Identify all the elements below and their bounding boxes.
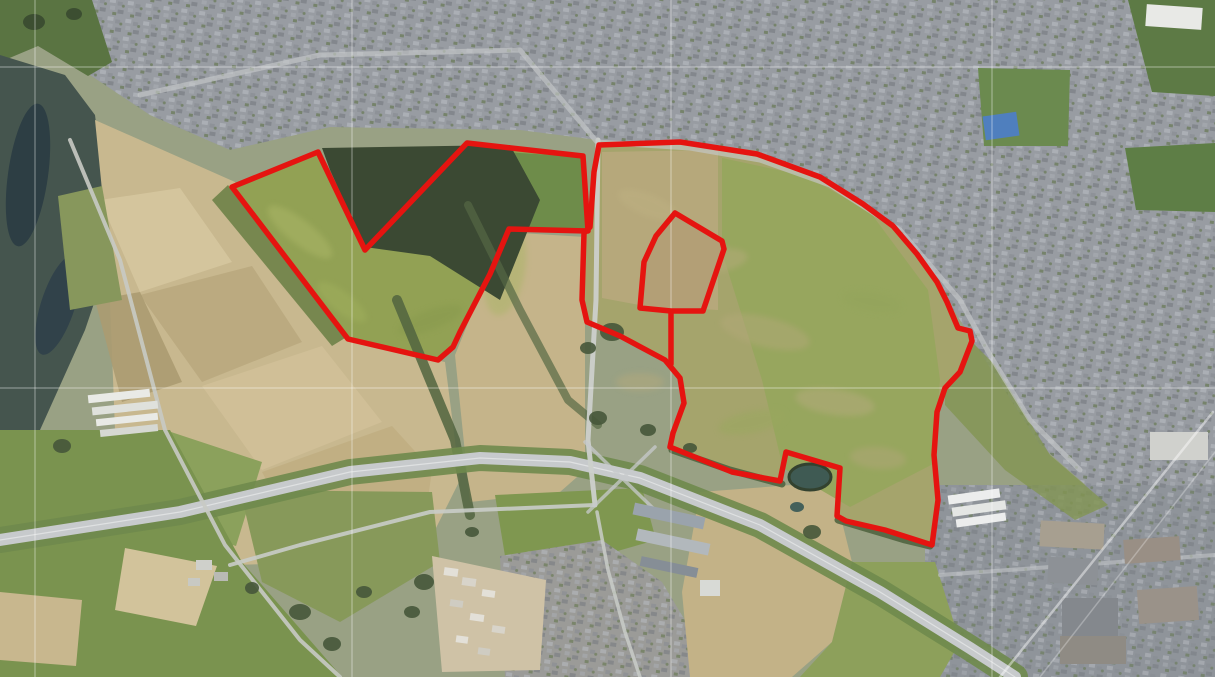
- village-house-1: [196, 560, 212, 570]
- campus-parking-lot: [1062, 598, 1118, 636]
- landcover-group: [0, 0, 1215, 677]
- tree-clump-4: [414, 574, 434, 590]
- tree-clump-13: [465, 527, 479, 537]
- pond-small: [790, 502, 804, 512]
- tree-clump-12: [404, 606, 420, 618]
- tree-clump-3: [640, 424, 656, 436]
- tree-clump-8: [53, 439, 71, 453]
- tree-clump-14: [803, 525, 821, 539]
- tree-clump-7: [356, 586, 372, 598]
- field-right-1: [1125, 143, 1215, 212]
- village-house-2: [214, 572, 228, 581]
- village-house-3: [188, 578, 200, 586]
- campus-block-1: [1039, 520, 1104, 549]
- white-building-top-right: [1145, 4, 1202, 30]
- tree-clump-9: [23, 14, 45, 30]
- aerial-map-view: [0, 0, 1215, 677]
- tree-clump-5: [289, 604, 311, 620]
- campus-block-3: [1047, 557, 1098, 586]
- pond: [789, 464, 831, 490]
- warehouse-4: [700, 580, 720, 596]
- tree-clump-6: [323, 637, 341, 651]
- tree-clump-11: [245, 582, 259, 594]
- tree-clump-10: [66, 8, 82, 20]
- satellite-map-canvas: [0, 0, 1215, 677]
- tree-clump-2: [589, 411, 607, 425]
- field-bl-tan-2: [0, 592, 82, 666]
- campus-block-4: [1137, 586, 1199, 624]
- tree-clump-16: [580, 342, 596, 354]
- campus-block-5: [1060, 636, 1126, 664]
- blue-roof-building: [982, 112, 1019, 140]
